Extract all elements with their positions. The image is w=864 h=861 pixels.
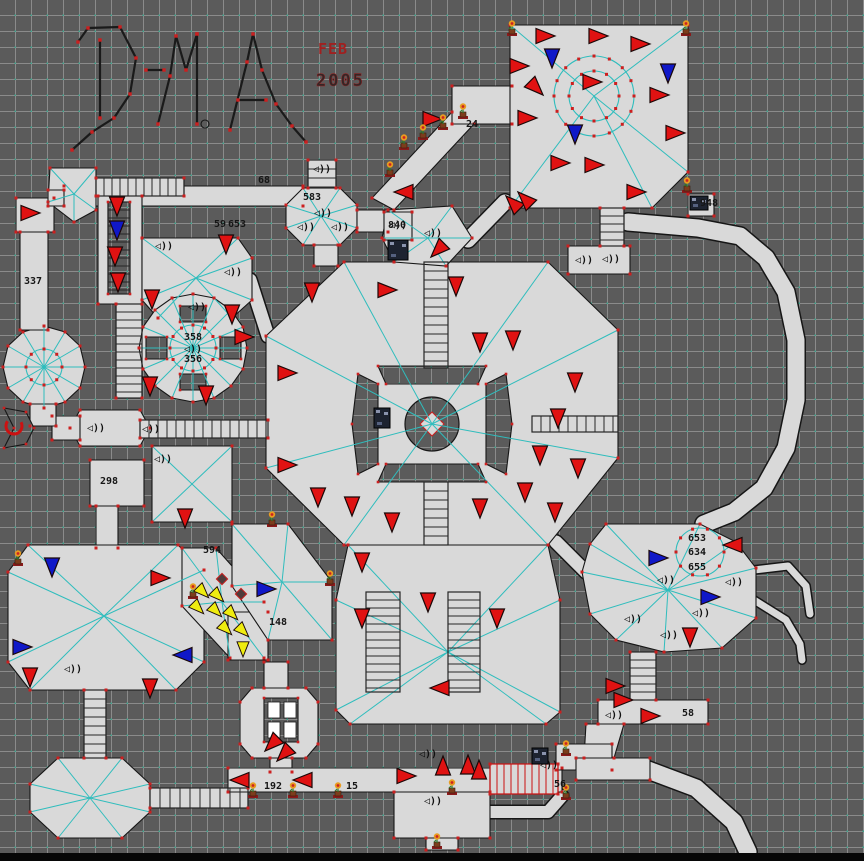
vertex-dot <box>755 567 758 570</box>
sound-thing-icon[interactable]: ◁)) <box>155 241 173 252</box>
vertex-dot <box>605 116 608 119</box>
vertex-dot <box>219 358 222 361</box>
vertex-dot <box>511 85 514 88</box>
vertex-dot <box>143 505 146 508</box>
vertex-dot <box>145 358 148 361</box>
torch-bloom-core <box>685 22 688 25</box>
vertex-dot <box>593 55 596 58</box>
vertex-dot <box>356 209 359 212</box>
sector-tag-label: 653 <box>688 533 706 544</box>
sound-thing-icon[interactable]: ◁)) <box>331 222 349 233</box>
vertex-dot <box>154 309 157 312</box>
vertex-dot <box>349 723 352 726</box>
vertex-dot <box>166 358 169 361</box>
vertex-dot <box>2 366 5 369</box>
vertex-dot <box>179 305 182 308</box>
vertex-dot <box>485 463 488 466</box>
vertex-dot <box>79 445 82 448</box>
vertex-dot <box>79 439 82 442</box>
vertex-dot <box>577 58 580 61</box>
vertex-dot <box>302 187 305 190</box>
vertex-dot <box>203 366 206 369</box>
vertex-dot <box>121 837 124 840</box>
vertex-dot <box>687 171 690 174</box>
torch-bloom-core <box>252 784 255 787</box>
vertex-dot <box>305 757 308 760</box>
title-date-month: FEB <box>318 40 348 58</box>
vertex-dot <box>356 227 359 230</box>
sound-thing-icon[interactable]: ◁)) <box>624 614 642 625</box>
vertex-dot <box>614 107 617 110</box>
sector-polygon[interactable] <box>314 245 338 266</box>
vertex-dot <box>723 551 726 554</box>
vertex-dot <box>69 427 72 430</box>
torch-bloom-core <box>442 116 445 119</box>
vertex-dot <box>691 528 694 531</box>
vertex-dot <box>580 116 583 119</box>
vertex-dot <box>605 73 608 76</box>
vertex-dot <box>571 107 574 110</box>
vertex-dot <box>143 459 146 462</box>
vertex-dot <box>128 92 131 95</box>
vertex-dot <box>15 231 18 234</box>
vertex-dot <box>95 167 98 170</box>
sector-polygon[interactable] <box>96 506 118 548</box>
vertex-dot <box>269 771 272 774</box>
vertex-dot <box>73 221 76 224</box>
vertex-dot <box>629 110 632 113</box>
sound-thing-icon[interactable]: ◁)) <box>64 664 82 675</box>
vertex-dot <box>608 58 611 61</box>
vertex-dot <box>555 743 558 746</box>
vertex-dot <box>95 177 98 180</box>
vertex-dot <box>263 657 266 660</box>
vertex-dot <box>485 383 488 386</box>
vertex-dot <box>55 425 58 428</box>
vertex-dot <box>47 189 50 192</box>
vertex-dot <box>141 195 144 198</box>
vertex-dot <box>393 791 396 794</box>
vertex-dot <box>267 659 270 662</box>
sound-thing-icon[interactable]: ◁)) <box>424 228 442 239</box>
vertex-dot <box>699 523 702 526</box>
vertex-dot <box>718 536 721 539</box>
vertex-dot <box>663 651 666 654</box>
vertex-dot <box>171 297 174 300</box>
sector-tag-label: 15 <box>346 781 358 792</box>
vertex-dot <box>107 201 110 204</box>
vertex-dot <box>302 205 305 208</box>
vertex-dot <box>172 335 175 338</box>
sector-tag-label: 634 <box>688 547 706 558</box>
vertex-dot <box>287 687 290 690</box>
sprite-box-speckle <box>542 752 546 755</box>
vertex-dot <box>112 116 115 119</box>
vertex-dot <box>564 66 567 69</box>
vertex-dot <box>7 571 10 574</box>
torch-bloom-core <box>271 513 274 516</box>
void-sector-polygon[interactable] <box>378 464 486 482</box>
vertex-dot <box>129 293 132 296</box>
vertex-dot <box>139 437 142 440</box>
vertex-dot <box>172 358 175 361</box>
vertex-dot <box>156 122 159 125</box>
vertex-dot <box>337 265 340 268</box>
torch-bloom-core <box>511 22 514 25</box>
sector-tag-label: 298 <box>100 476 118 487</box>
vertex-dot <box>285 204 288 207</box>
vertex-dot <box>184 68 187 71</box>
vertex-dot <box>51 415 54 418</box>
vertex-dot <box>457 849 460 852</box>
vertex-dot <box>86 26 89 29</box>
vertex-dot <box>240 358 243 361</box>
vertex-dot <box>629 245 632 248</box>
vertex-dot <box>239 743 242 746</box>
vertex-dot <box>451 123 454 126</box>
vertex-dot <box>629 79 632 82</box>
vertex-dot <box>84 366 87 369</box>
vertex-dot <box>175 689 178 692</box>
vertex-dot <box>107 293 110 296</box>
vertex-dot <box>27 544 30 547</box>
vertex-dot <box>675 551 678 554</box>
vertex-dot <box>83 689 86 692</box>
torch-bloom-core <box>565 742 568 745</box>
vertex-dot <box>505 473 508 476</box>
vertex-dot <box>713 215 716 218</box>
vertex-dot <box>141 303 144 306</box>
vertex-dot <box>64 331 67 334</box>
vertex-dot <box>242 326 245 329</box>
torch-bloom-core <box>17 552 20 555</box>
vertex-dot <box>61 366 64 369</box>
vertex-dot <box>151 445 154 448</box>
vertex-dot <box>567 245 570 248</box>
vertex-dot <box>575 779 578 782</box>
vertex-dot <box>302 244 305 247</box>
vertex-dot <box>29 811 32 814</box>
sound-thing-icon[interactable]: ◁)) <box>313 164 331 175</box>
vertex-dot <box>335 187 338 190</box>
map-canvas[interactable]: ◁))◁))◁))◁))◁))◁))◁))◁))◁))◁))◁))◁))◁))◁… <box>0 0 864 861</box>
vertex-dot <box>251 687 254 690</box>
vertex-dot <box>411 211 414 214</box>
sector-tag-label: 840 <box>388 220 406 231</box>
vertex-dot <box>57 837 60 840</box>
vertex-dot <box>29 783 32 786</box>
vertex-dot <box>171 397 174 400</box>
sound-thing-icon[interactable]: ◁)) <box>224 267 242 278</box>
vertex-dot <box>195 122 198 125</box>
vertex-dot <box>118 25 121 28</box>
sector-tag-label: 68 <box>258 175 270 186</box>
vertex-dot <box>649 779 652 782</box>
vertex-dot <box>213 297 216 300</box>
vertex-dot <box>614 82 617 85</box>
vertex-dot <box>477 383 480 386</box>
vertex-dot <box>63 205 66 208</box>
vertex-dot <box>192 401 195 404</box>
vertex-dot <box>203 569 206 572</box>
vertex-dot <box>651 207 654 210</box>
vertex-dot <box>583 757 586 760</box>
vertex-dot <box>687 215 690 218</box>
torch-bloom-core <box>462 105 465 108</box>
vertex-dot <box>655 699 658 702</box>
vertex-dot <box>260 68 263 71</box>
sector-polygon[interactable] <box>264 662 288 688</box>
vertex-dot <box>7 387 10 390</box>
vertex-dot <box>611 743 614 746</box>
vertex-dot <box>43 384 46 387</box>
vertex-dot <box>63 185 66 188</box>
vertex-dot <box>351 423 354 426</box>
vertex-dot <box>179 389 182 392</box>
vertex-dot <box>618 95 621 98</box>
vertex-dot <box>29 689 32 692</box>
vertex-dot <box>134 56 137 59</box>
vertex-dot <box>95 547 98 550</box>
vertex-dot <box>149 787 152 790</box>
vertex-dot <box>139 419 142 422</box>
vertex-dot <box>383 239 386 242</box>
vertex-dot <box>43 407 46 410</box>
vertex-dot <box>356 204 359 207</box>
vertex-dot <box>211 358 214 361</box>
vertex-dot <box>721 647 724 650</box>
vertex-dot <box>547 544 550 547</box>
vertex-dot <box>98 38 101 41</box>
vertex-dot <box>357 473 360 476</box>
sound-thing-icon[interactable]: ◁)) <box>297 222 315 233</box>
vertex-dot <box>192 370 195 373</box>
vertex-dot <box>547 261 550 264</box>
sound-thing-icon[interactable]: ◁)) <box>87 423 105 434</box>
vertex-dot <box>3 407 6 410</box>
void-sector-polygon[interactable] <box>486 374 512 474</box>
vertex-dot <box>166 336 169 339</box>
vertex-dot <box>567 273 570 276</box>
sound-thing-icon[interactable]: ◁)) <box>575 255 593 266</box>
vertex-dot <box>149 783 152 786</box>
vertex-dot <box>55 353 58 356</box>
vertex-dot <box>231 523 234 526</box>
vertex-dot <box>55 378 58 381</box>
sound-thing-icon[interactable]: ◁)) <box>602 254 620 265</box>
sound-thing-icon[interactable]: ◁)) <box>657 575 675 586</box>
vertex-dot <box>623 245 626 248</box>
vertex-dot <box>489 837 492 840</box>
vertex-dot <box>411 239 414 242</box>
sprite-box-speckle <box>692 198 696 201</box>
sector-tag-label: 24 <box>466 119 478 130</box>
vertex-dot <box>307 159 310 162</box>
sector-polygon[interactable] <box>70 410 150 446</box>
vertex-dot <box>457 837 460 840</box>
sound-thing-icon[interactable]: ◁)) <box>154 454 172 465</box>
vertex-dot <box>377 365 380 368</box>
vertex-dot <box>179 321 182 324</box>
vertex-dot <box>141 299 144 302</box>
vertex-dot <box>51 439 54 442</box>
vertex-dot <box>568 95 571 98</box>
torch-bloom-core <box>403 136 406 139</box>
vertex-dot <box>192 324 195 327</box>
vertex-dot <box>287 523 290 526</box>
vertex-dot <box>33 427 36 430</box>
vertex-dot <box>64 401 67 404</box>
vertex-dot <box>53 197 56 200</box>
window-pane <box>284 722 296 738</box>
vertex-dot <box>13 427 16 430</box>
vertex-dot <box>267 639 270 642</box>
vertex-dot <box>393 837 396 840</box>
sector-tag-label: 337 <box>24 276 42 287</box>
vertex-dot <box>511 423 514 426</box>
sound-thing-icon[interactable]: ◁)) <box>692 608 710 619</box>
vertex-dot <box>227 767 230 770</box>
vertex-dot <box>47 329 50 332</box>
sector-polygon[interactable] <box>510 25 688 208</box>
vertex-dot <box>247 807 250 810</box>
vertex-dot <box>623 207 626 210</box>
sound-thing-icon[interactable]: ◁)) <box>314 208 332 219</box>
sector-polygon[interactable] <box>84 690 106 758</box>
vertex-dot <box>76 40 79 43</box>
sector-tag-label: 948 <box>700 198 718 209</box>
sector-polygon[interactable] <box>96 178 184 196</box>
vertex-dot <box>263 601 266 604</box>
vertex-dot <box>589 613 592 616</box>
vertex-dot <box>593 135 596 138</box>
vertex-dot <box>485 481 488 484</box>
vertex-dot <box>313 265 316 268</box>
vertex-dot <box>117 505 120 508</box>
vertex-dot <box>605 523 608 526</box>
void-sector-polygon[interactable] <box>378 366 486 384</box>
vertex-dot <box>291 771 294 774</box>
vertex-dot <box>211 335 214 338</box>
vertex-dot <box>608 131 611 134</box>
sprite-box-speckle <box>384 412 388 415</box>
vertex-dot <box>451 85 454 88</box>
vertex-dot <box>25 366 28 369</box>
sector-tag-label: 594 <box>203 545 221 556</box>
vertex-dot <box>679 536 682 539</box>
vertex-dot <box>228 128 231 131</box>
vertex-dot <box>162 68 165 71</box>
sound-thing-icon[interactable]: ◁)) <box>605 710 623 721</box>
vertex-dot <box>47 231 50 234</box>
vertex-dot <box>285 227 288 230</box>
sound-thing-icon[interactable]: ◁)) <box>424 796 442 807</box>
vertex-dot <box>15 197 18 200</box>
vertex-dot <box>489 763 492 766</box>
vertex-dot <box>269 757 272 760</box>
vertex-dot <box>30 353 33 356</box>
vertex-dot <box>291 757 294 760</box>
vertex-dot <box>63 189 66 192</box>
vertex-dot <box>706 573 709 576</box>
vertex-dot <box>317 743 320 746</box>
vertex-dot <box>264 98 267 101</box>
vertex-dot <box>117 547 120 550</box>
vertex-dot <box>25 443 28 446</box>
vertex-dot <box>179 373 182 376</box>
vertex-dot <box>633 95 636 98</box>
vertex-dot <box>553 95 556 98</box>
sprite-box-speckle <box>693 204 698 207</box>
vertex-dot <box>265 335 268 338</box>
vertex-dot <box>335 709 338 712</box>
vertex-dot <box>593 70 596 73</box>
vertex-dot <box>79 415 82 418</box>
sound-thing-icon[interactable]: ◁)) <box>660 630 678 641</box>
vertex-dot <box>265 467 268 470</box>
vertex-dot <box>83 757 86 760</box>
vertex-dot <box>97 195 100 198</box>
vertex-dot <box>287 661 290 664</box>
vertex-dot <box>451 111 454 114</box>
vertex-dot <box>22 331 25 334</box>
vertex-dot <box>213 397 216 400</box>
vertex-dot <box>192 293 195 296</box>
vertex-dot <box>477 463 480 466</box>
vertex-dot <box>168 74 171 77</box>
vertex-dot <box>615 639 618 642</box>
vertex-dot <box>393 261 396 264</box>
torch-bloom-core <box>389 163 392 166</box>
vertex-dot <box>385 463 388 466</box>
vertex-dot <box>30 378 33 381</box>
sound-thing-icon[interactable]: ◁)) <box>188 302 206 313</box>
vertex-dot <box>142 326 145 329</box>
vertex-dot <box>377 481 380 484</box>
vertex-dot <box>425 849 428 852</box>
vertex-dot <box>557 793 560 796</box>
vertex-dot <box>205 373 208 376</box>
vertex-dot <box>593 120 596 123</box>
vertex-dot <box>236 98 239 101</box>
vertex-dot <box>180 327 183 330</box>
vertex-dot <box>597 699 600 702</box>
vertex-dot <box>55 403 58 406</box>
vertex-dot <box>629 651 632 654</box>
vertex-dot <box>7 661 10 664</box>
sound-thing-icon[interactable]: ◁)) <box>725 577 743 588</box>
vertex-dot <box>445 265 448 268</box>
vertex-dot <box>29 403 32 406</box>
vertex-dot <box>149 807 152 810</box>
vertex-dot <box>267 437 270 440</box>
sound-thing-icon[interactable]: ◁)) <box>142 424 160 435</box>
vertex-dot <box>43 348 46 351</box>
vertex-dot <box>89 459 92 462</box>
sector-tag-label: 356 <box>184 354 202 365</box>
vertex-dot <box>307 187 310 190</box>
vertex-dot <box>337 244 340 247</box>
vertex-dot <box>305 687 308 690</box>
vertex-dot <box>556 79 559 82</box>
vertex-dot <box>79 409 82 412</box>
vertex-dot <box>707 723 710 726</box>
torch-bloom-core <box>422 126 425 129</box>
vertex-dot <box>621 66 624 69</box>
vertex-dot <box>79 345 82 348</box>
sound-thing-icon[interactable]: ◁)) <box>419 749 437 760</box>
vertex-dot <box>335 599 338 602</box>
